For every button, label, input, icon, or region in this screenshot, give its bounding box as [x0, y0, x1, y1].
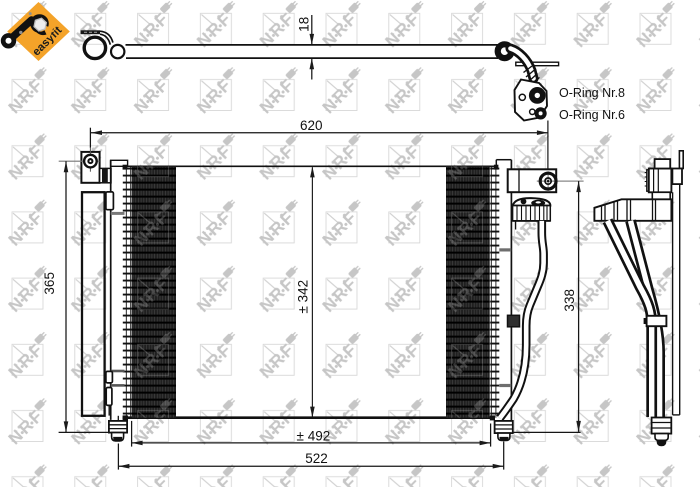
svg-text:O-Ring Nr.8: O-Ring Nr.8 [559, 86, 625, 100]
svg-text:± 492: ± 492 [297, 428, 331, 443]
svg-text:± 342: ± 342 [296, 280, 311, 314]
svg-text:522: 522 [305, 451, 328, 466]
svg-text:365: 365 [42, 272, 57, 295]
svg-text:18: 18 [296, 17, 311, 32]
svg-text:620: 620 [300, 118, 323, 133]
svg-text:O-Ring Nr.6: O-Ring Nr.6 [559, 108, 625, 122]
svg-text:338: 338 [562, 289, 577, 312]
